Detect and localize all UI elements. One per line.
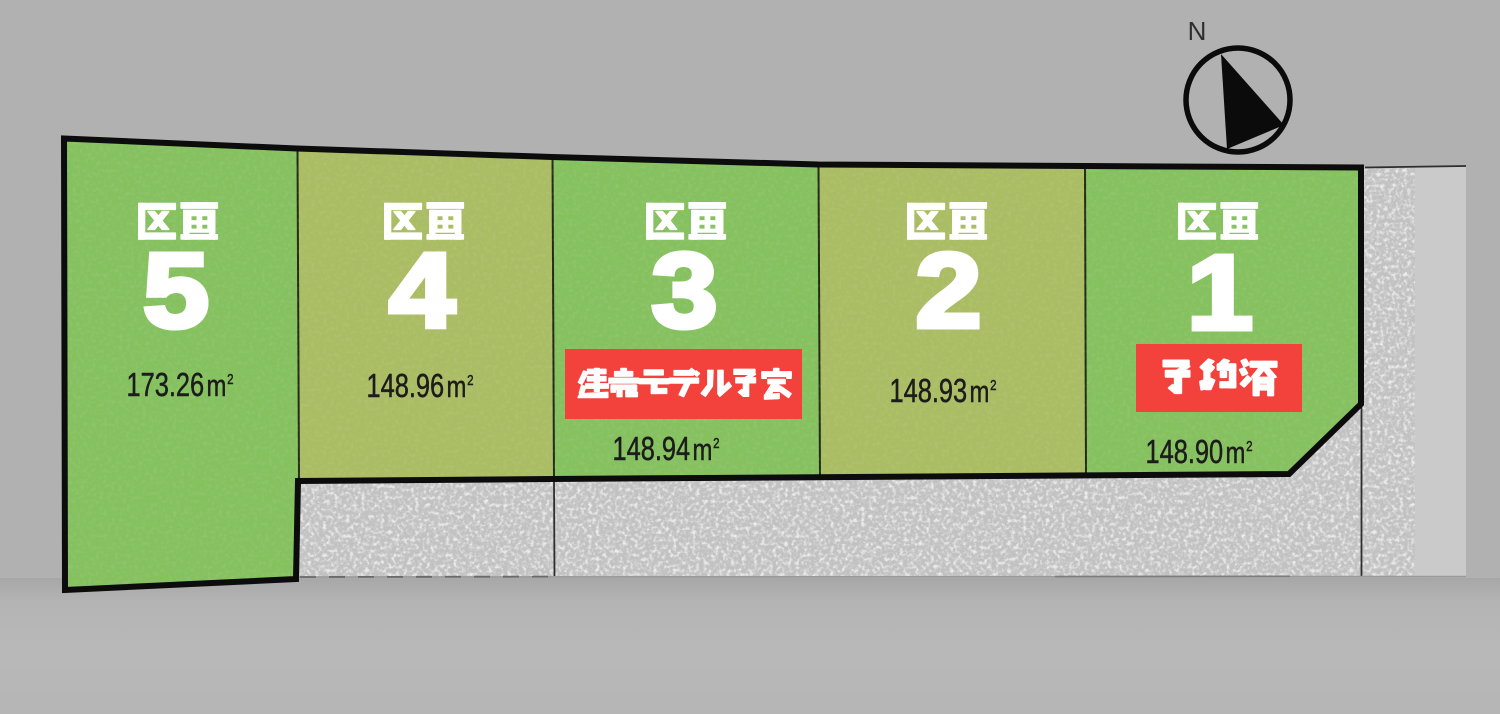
svg-text:148.93m2: 148.93m2 [889,373,996,410]
svg-text:N: N [1188,16,1207,46]
svg-text:1: 1 [1187,233,1253,352]
svg-text:2: 2 [915,231,981,350]
svg-text:4: 4 [389,231,455,350]
svg-text:173.26m2: 173.26m2 [126,367,233,404]
svg-text:3: 3 [651,231,717,350]
svg-text:5: 5 [143,231,209,350]
svg-text:148.90m2: 148.90m2 [1145,434,1252,471]
svg-text:148.94m2: 148.94m2 [612,431,719,468]
svg-text:148.96m2: 148.96m2 [366,368,473,405]
